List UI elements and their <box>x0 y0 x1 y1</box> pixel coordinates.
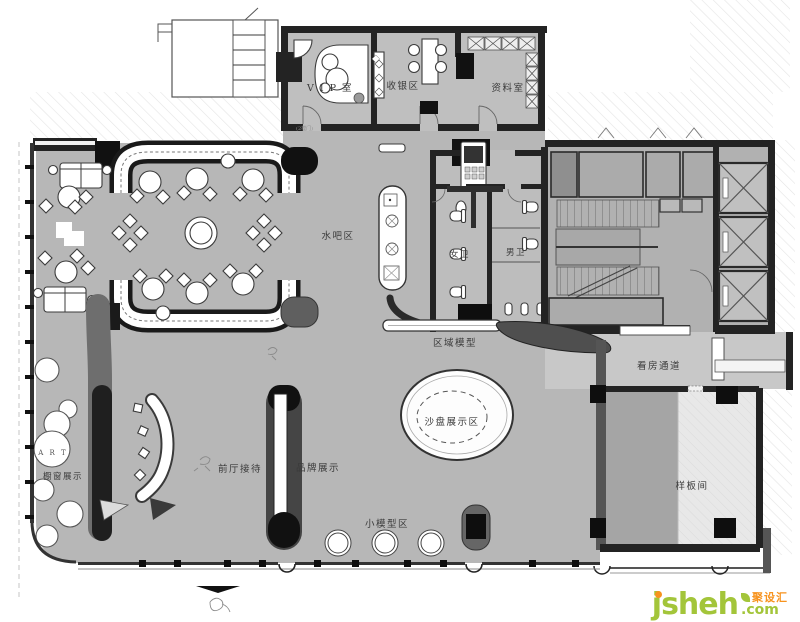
label-brand-display: 品牌展示 <box>296 462 340 474</box>
label-womens-wc: 女卫 <box>450 249 470 260</box>
watermark-tld: .com <box>741 603 779 617</box>
watermark: jsheh 聚设汇 .com <box>652 592 788 617</box>
exterior-stair <box>158 8 278 97</box>
label-viewing-corridor: 看房通道 <box>637 360 681 372</box>
label-mens-wc: 男卫 <box>506 248 526 258</box>
label-window-display: 橱窗展示 <box>43 471 83 482</box>
label-art: A R T <box>37 449 67 457</box>
label-door-note: (2樘门) <box>296 125 313 132</box>
leaf-icon <box>741 593 750 602</box>
label-reception: 前厅接待 <box>218 463 262 475</box>
label-water-bar: 水吧区 <box>321 230 354 242</box>
label-sand-table: 沙盘展示区 <box>424 416 479 428</box>
floor-plan-svg: V I P 室 收银区 资料室 水吧区 女卫 男卫 区域模型 看房通道 样板间 … <box>0 0 800 622</box>
sand-table <box>401 370 513 460</box>
label-small-model: 小模型区 <box>365 518 409 530</box>
watermark-name: jsheh <box>652 593 738 617</box>
elevators <box>713 145 768 332</box>
floor-plan-image: V I P 室 收银区 资料室 水吧区 女卫 男卫 区域模型 看房通道 样板间 … <box>0 0 800 622</box>
label-archive: 资料室 <box>491 82 524 94</box>
label-sample-room: 样板间 <box>675 480 708 492</box>
label-cashier: 收银区 <box>386 80 419 92</box>
label-area-model: 区域模型 <box>433 337 477 349</box>
label-vip: V I P 室 <box>306 82 353 94</box>
